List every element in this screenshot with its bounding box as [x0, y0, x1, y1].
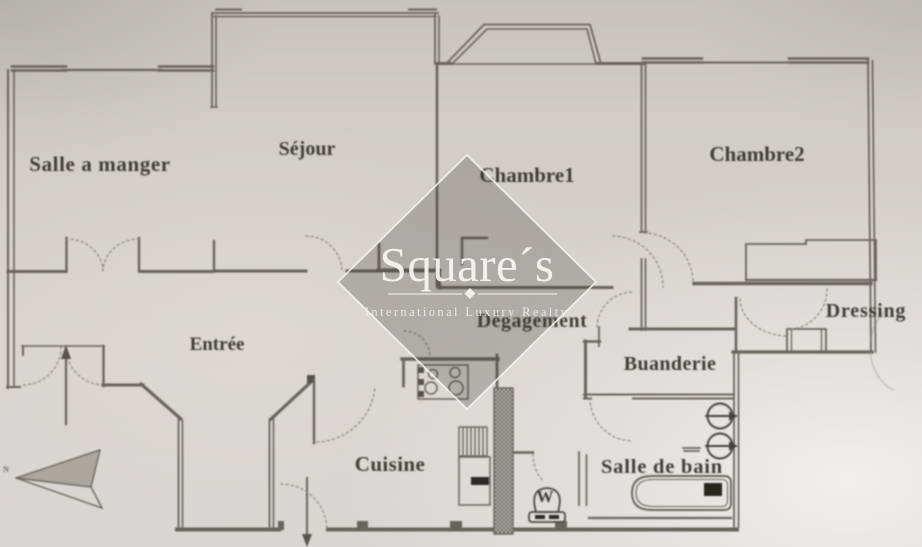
svg-text:International Luxury Realty: International Luxury Realty — [365, 305, 569, 319]
svg-text:Square´s: Square´s — [380, 237, 555, 292]
svg-text:Chambre2: Chambre2 — [709, 142, 804, 166]
svg-text:W: W — [537, 487, 554, 506]
svg-text:Salle de bain: Salle de bain — [601, 456, 723, 478]
svg-text:Dressing: Dressing — [826, 300, 906, 322]
svg-text:Entrée: Entrée — [190, 334, 245, 355]
svg-text:Séjour: Séjour — [279, 138, 336, 160]
svg-text:Salle a manger: Salle a manger — [29, 152, 170, 176]
svg-text:Cuisine: Cuisine — [355, 452, 426, 476]
svg-text:N: N — [3, 465, 9, 474]
svg-text:Buanderie: Buanderie — [624, 353, 717, 375]
